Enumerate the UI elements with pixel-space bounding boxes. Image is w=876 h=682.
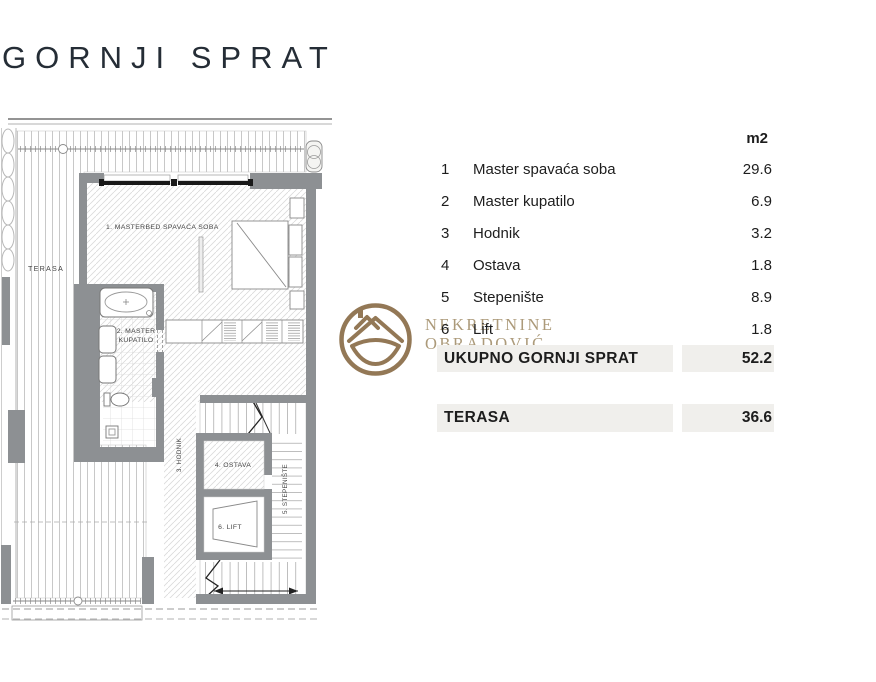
room-area: 1.8	[682, 321, 774, 338]
room-area: 29.6	[682, 161, 774, 178]
room-area: 8.9	[682, 289, 774, 306]
unit-header: m2	[437, 123, 774, 153]
label-terasa: TERASA	[28, 264, 64, 273]
windows	[99, 175, 253, 186]
room-name: Hodnik	[473, 225, 682, 242]
label-bathroom-1: 2. MASTER	[117, 328, 156, 335]
room-area: 3.2	[682, 225, 774, 242]
planter	[306, 141, 322, 172]
total-label: UKUPNO GORNJI SPRAT	[437, 345, 673, 372]
label-bedroom: 1. MASTERBED SPAVAĆA SOBA	[106, 222, 219, 231]
toilet	[104, 393, 129, 406]
row-number: 3	[437, 225, 473, 242]
room-name: Lift	[473, 321, 682, 338]
floor-plan-drawing: TERASA 1. MASTERBED SPAVAĆA SOBA 2. MAST…	[0, 112, 346, 628]
terrace-row: TERASA 36.6	[437, 404, 774, 432]
bathtub	[100, 288, 153, 317]
row-number: 5	[437, 289, 473, 306]
mirror	[199, 237, 203, 292]
room-area: 1.8	[682, 257, 774, 274]
row-number: 2	[437, 193, 473, 210]
cell-gap	[673, 345, 682, 372]
table-row: 6 Lift 1.8	[437, 313, 774, 345]
row-number: 6	[437, 321, 473, 338]
roof-edge-lines	[8, 119, 332, 124]
terrace-label: TERASA	[437, 404, 673, 432]
label-ostava: 4. OSTAVA	[215, 462, 251, 469]
label-lift: 6. LIFT	[218, 524, 242, 531]
table-row: 1 Master spavaća soba 29.6	[437, 153, 774, 185]
total-row: UKUPNO GORNJI SPRAT 52.2	[437, 345, 774, 372]
table-row: 3 Hodnik 3.2	[437, 217, 774, 249]
room-name: Master kupatilo	[473, 193, 682, 210]
room-name: Stepenište	[473, 289, 682, 306]
room-area: 6.9	[682, 193, 774, 210]
table-row: 5 Stepenište 8.9	[437, 281, 774, 313]
total-area: 52.2	[682, 345, 774, 372]
room-name: Master spavaća soba	[473, 161, 682, 178]
area-table: m2 1 Master spavaća soba 29.6 2 Master k…	[437, 123, 774, 432]
label-hodnik: 3. HODNIK	[176, 437, 183, 472]
row-number: 4	[437, 257, 473, 274]
label-stepeniste: 5. STEPENIŠTE	[280, 464, 289, 514]
page-title: GORNJI SPRAT	[2, 40, 337, 76]
label-bathroom-2: KUPATILO	[118, 337, 153, 344]
cell-gap	[673, 404, 682, 432]
floorplan-page: GORNJI SPRAT	[0, 0, 876, 682]
terrace-railing-bottom	[12, 597, 142, 620]
agency-logo-icon	[338, 302, 413, 377]
table-row: 2 Master kupatilo 6.9	[437, 185, 774, 217]
washer	[106, 426, 118, 438]
planting-strip	[2, 128, 17, 598]
room-name: Ostava	[473, 257, 682, 274]
table-row: 4 Ostava 1.8	[437, 249, 774, 281]
row-number: 1	[437, 161, 473, 178]
terrace-area: 36.6	[682, 404, 774, 432]
wardrobe	[166, 320, 303, 343]
